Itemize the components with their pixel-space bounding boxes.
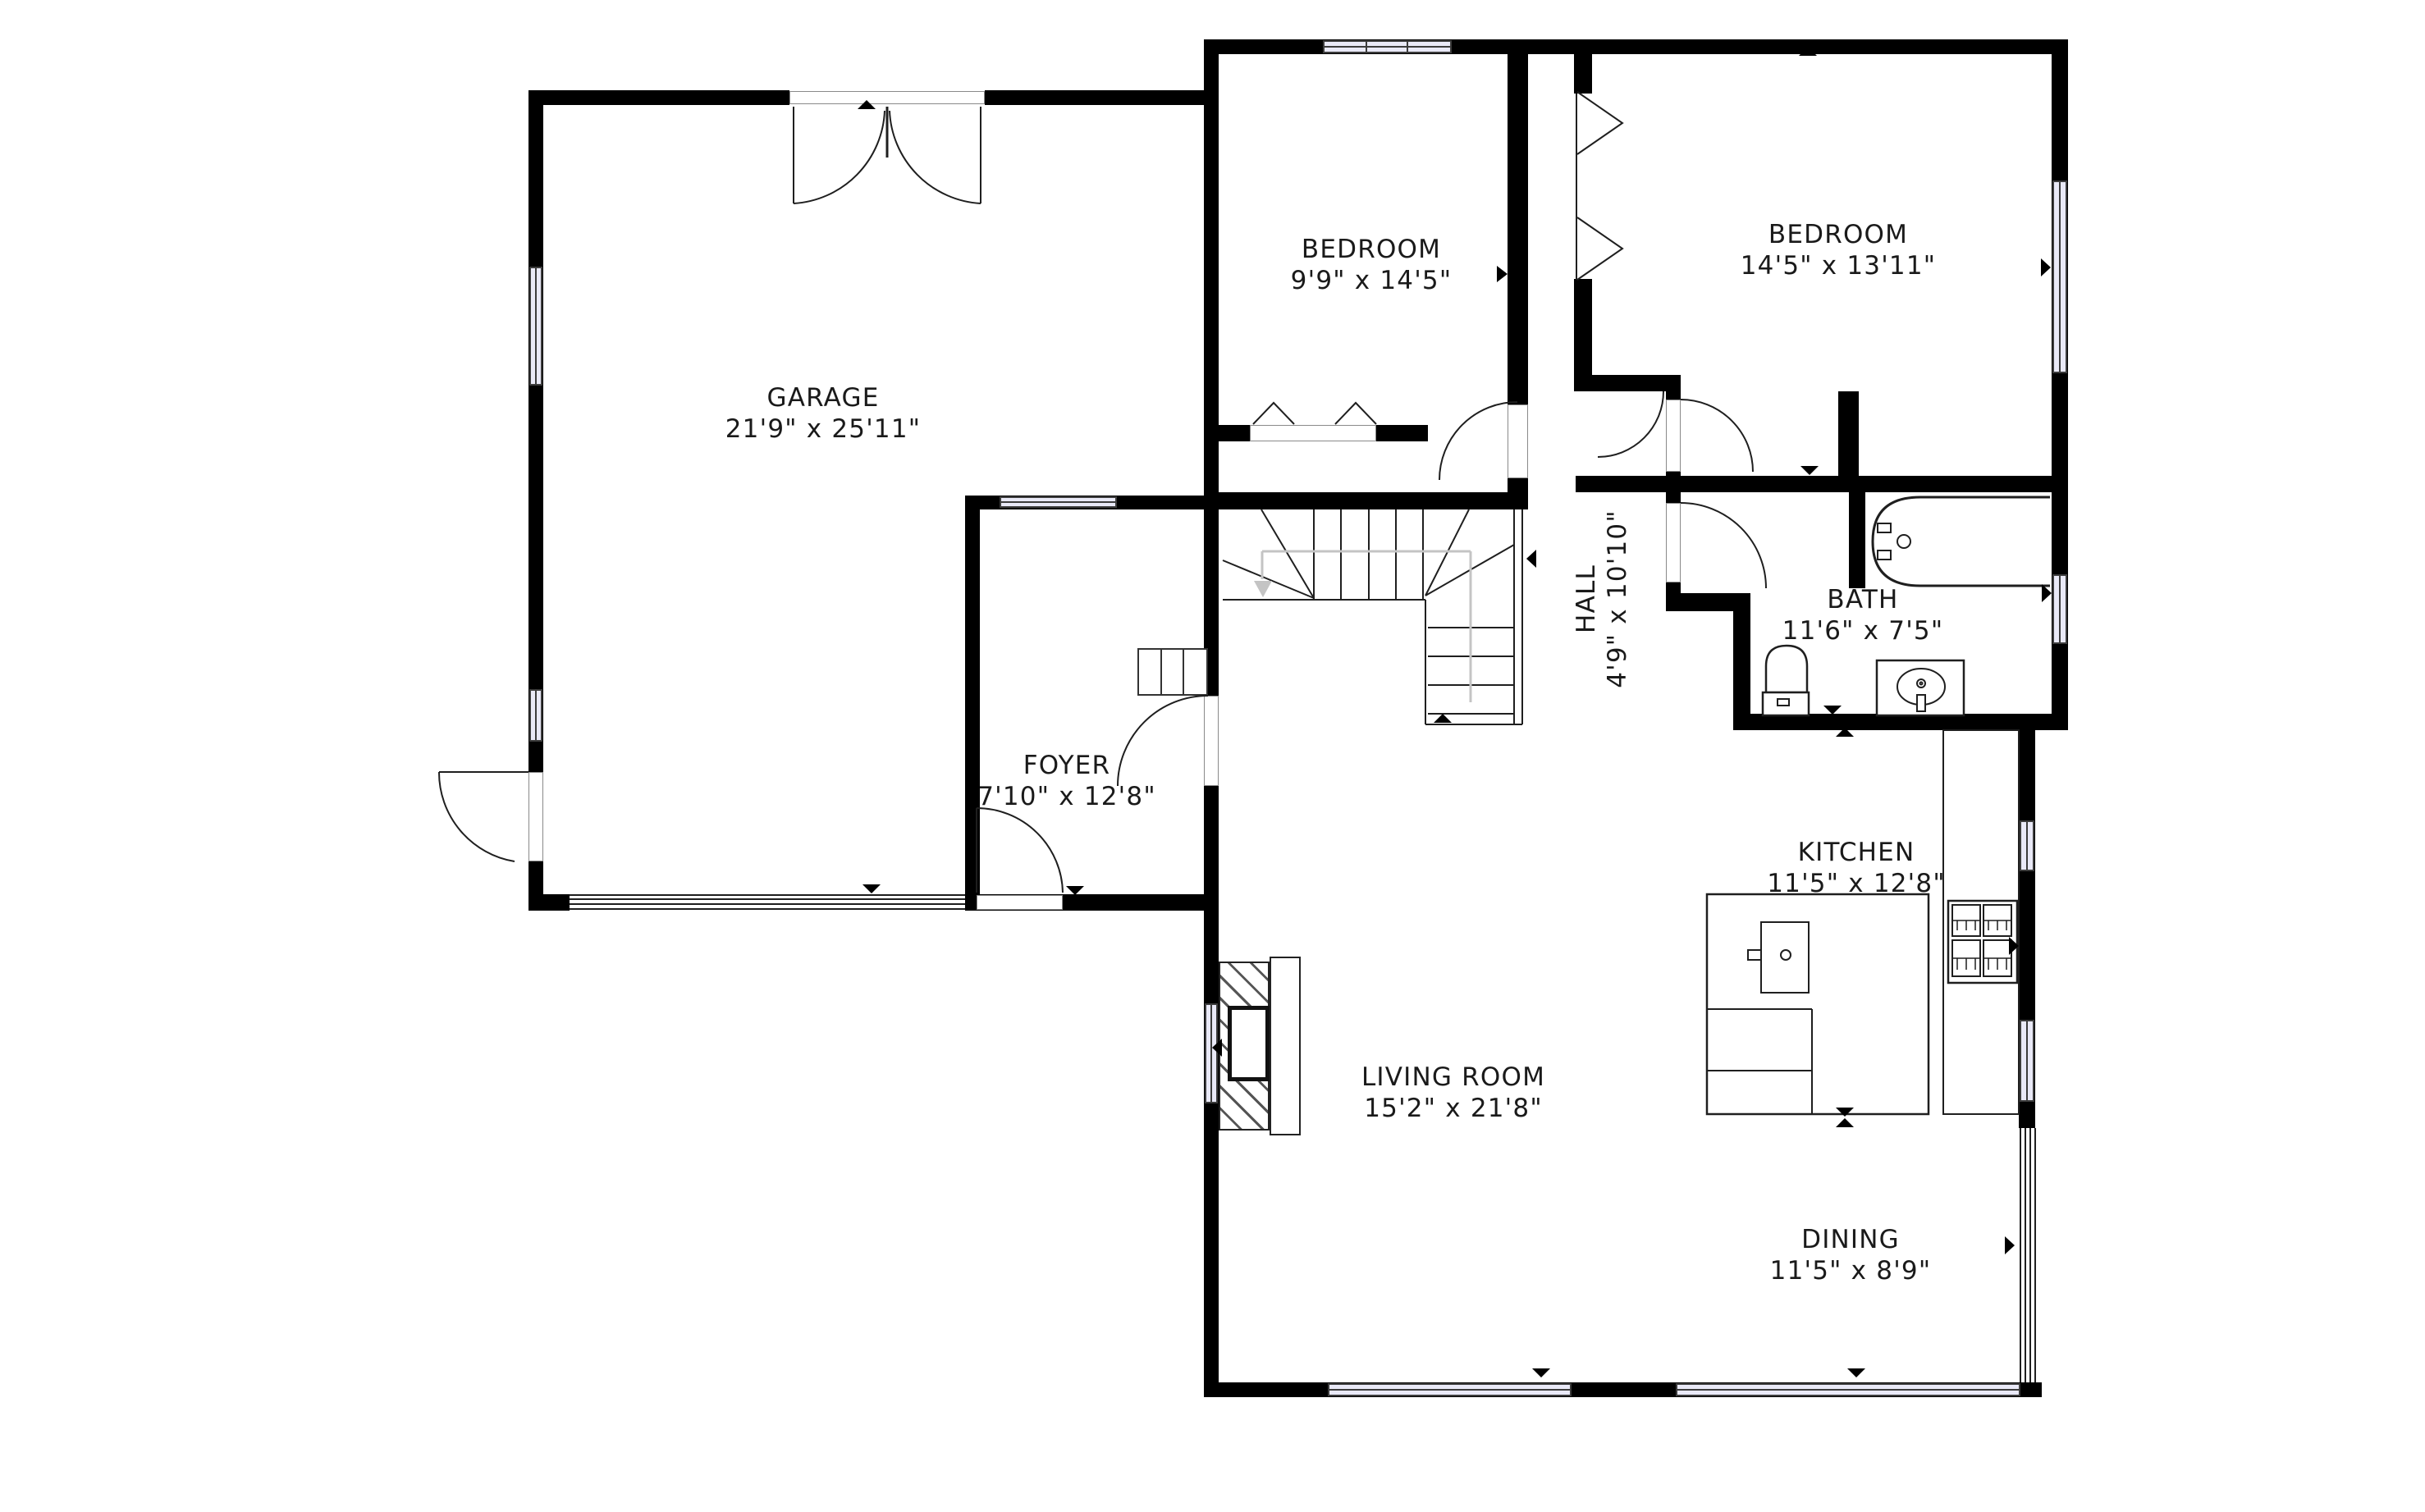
garage-double-door-swing [794,107,981,203]
bedroom1-bifold-doors [1253,403,1376,424]
room-name: HALL [1571,509,1602,688]
marker-bedroom2-window [2041,258,2051,276]
marker-garage-top [858,100,876,109]
garage-side-door-swing [439,772,528,861]
toilet [1763,646,1809,715]
room-name: BATH [1782,584,1944,615]
room-name: DINING [1770,1224,1932,1255]
marker-fireplace [1212,1039,1222,1057]
room-name: KITCHEN [1767,837,1946,868]
bathtub [1873,497,2050,586]
room-label-bedroom2: BEDROOM 14'5" x 13'11" [1741,219,1936,281]
bath-door-swing [1681,503,1766,588]
room-label-living: LIVING ROOM 15'2" x 21'8" [1361,1062,1545,1124]
kitchen-island [1707,894,1929,1114]
room-dims: 15'2" x 21'8" [1361,1093,1545,1124]
room-dims: 7'10" x 12'8" [977,781,1156,812]
room-dims: 21'9" x 25'11" [725,413,921,445]
marker-counter-b [1836,1118,1854,1127]
room-dims: 4'9" x 10'10" [1602,509,1633,688]
room-dims: 9'9" x 14'5" [1291,265,1453,296]
room-label-hall: HALL 4'9" x 10'10" [1571,509,1633,688]
bedroom2-bifold-doors [1576,92,1622,280]
marker-garage-door [862,884,881,893]
room-name: BEDROOM [1291,234,1453,265]
bedroom2-door-swing [1681,400,1753,472]
sliding-glass-door [2020,1128,2035,1382]
room-label-bedroom1: BEDROOM 9'9" x 14'5" [1291,234,1453,296]
marker-foyer-wall [1066,886,1084,895]
room-name: GARAGE [725,382,921,413]
room-label-dining: DINING 11'5" x 8'9" [1770,1224,1932,1286]
marker-nook-wall [1800,466,1819,475]
room-label-bath: BATH 11'6" x 7'5" [1782,584,1944,646]
room-name: LIVING ROOM [1361,1062,1545,1093]
marker-stair-hall [1526,550,1536,568]
room-name: BEDROOM [1741,219,1936,250]
marker-bedroom1-wall [1497,266,1508,282]
linen-closet-door-swing [1598,391,1663,457]
marker-bottom-window-1 [1532,1368,1550,1377]
plan-linework [0,0,2425,1512]
room-label-kitchen: KITCHEN 11'5" x 12'8" [1767,837,1946,899]
marker-stairs-guide [1254,581,1272,597]
floor-plan: GARAGE 21'9" x 25'11" BEDROOM 9'9" x 14'… [0,0,2425,1512]
marker-bedroom2-top [1799,47,1817,56]
room-label-garage: GARAGE 21'9" x 25'11" [725,382,921,445]
room-dims: 11'5" x 12'8" [1767,868,1946,899]
front-door-swing [977,808,1063,893]
room-label-foyer: FOYER 7'10" x 12'8" [977,750,1156,812]
marker-slider [2005,1236,2015,1254]
stairs [1223,509,1522,724]
room-dims: 11'5" x 8'9" [1770,1255,1932,1286]
marker-stairs-up [1434,714,1452,723]
room-dims: 14'5" x 13'11" [1741,250,1936,281]
marker-kitchen-top [1836,728,1854,737]
vanity-sink [1877,660,1964,715]
marker-bath-floor [1823,706,1842,715]
room-name: FOYER [977,750,1156,781]
garage-door [570,895,965,909]
room-dims: 11'6" x 7'5" [1782,615,1944,646]
marker-bottom-window-2 [1847,1368,1865,1377]
bedroom1-door-swing [1439,402,1517,480]
